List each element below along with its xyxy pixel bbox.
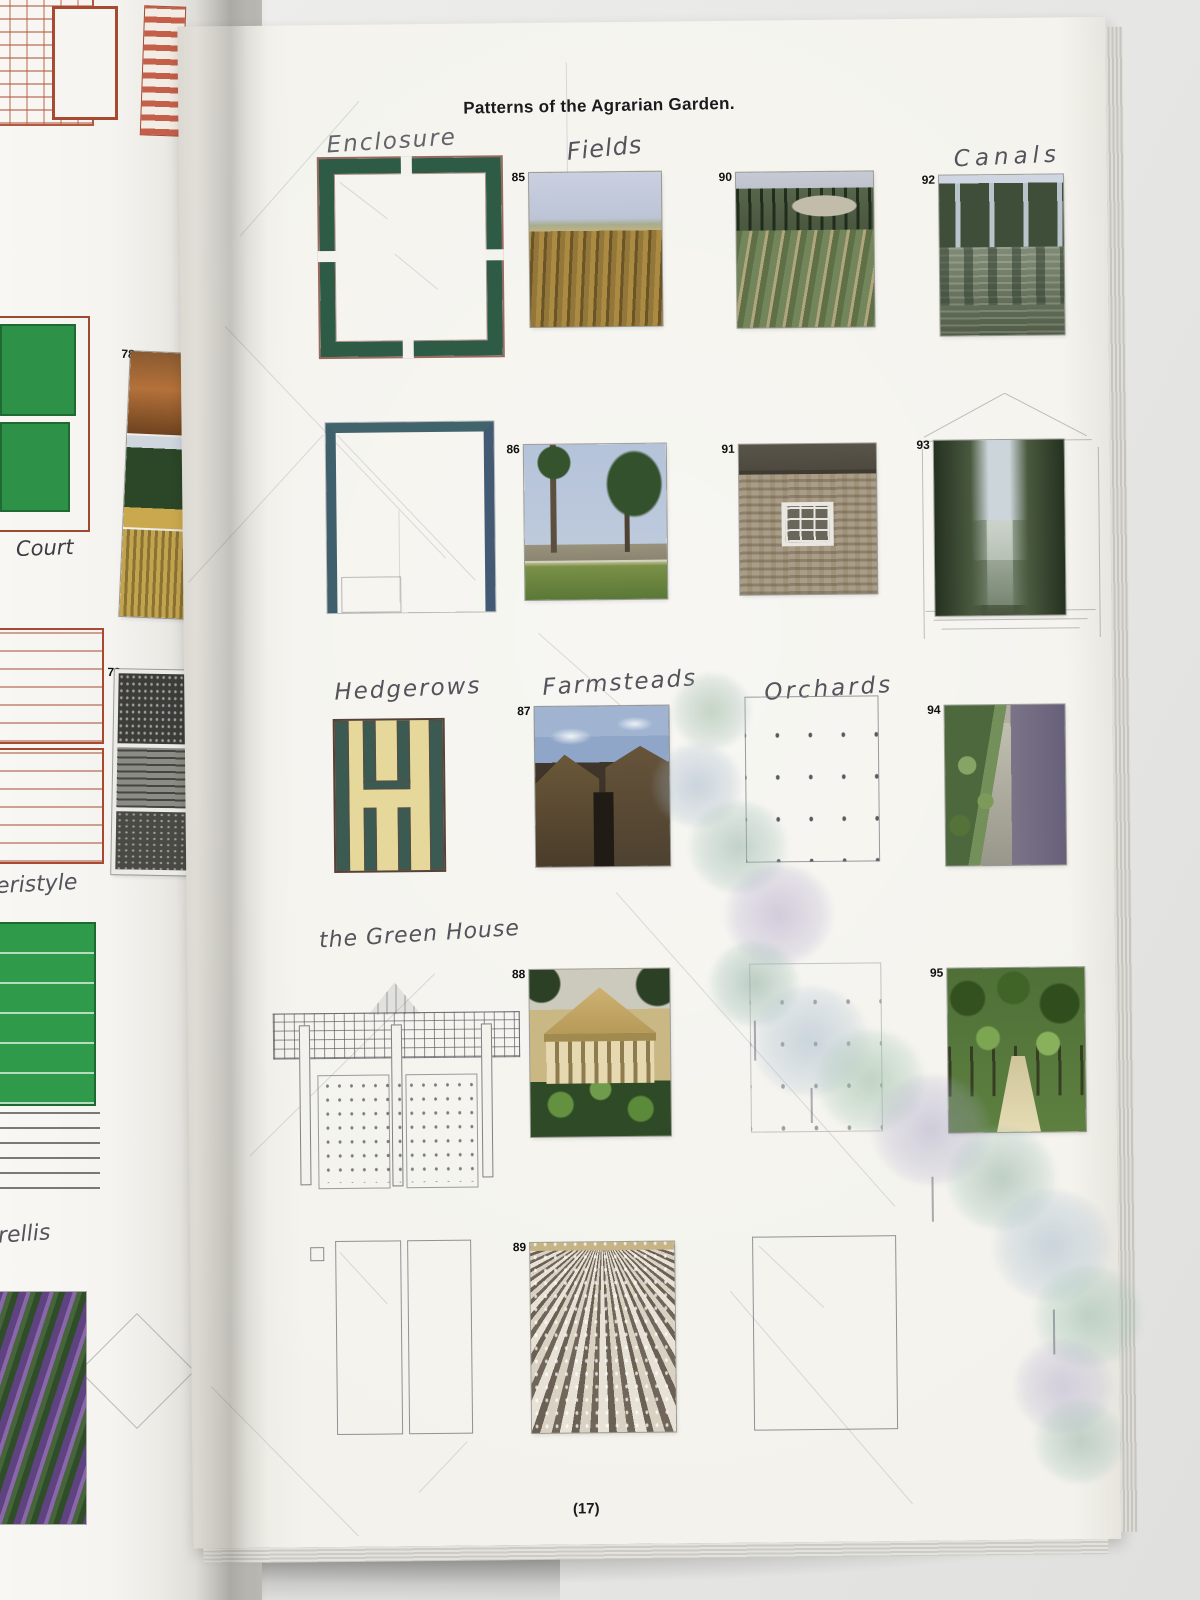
photo-crop-field [529, 172, 663, 327]
pencil-diamond-sketch [79, 1313, 195, 1429]
photo-villa-portico [529, 969, 671, 1137]
figure-86: 86 [524, 444, 668, 600]
section-label-hedgerows: Hedgerows [334, 673, 482, 706]
watercolor-blob [671, 673, 752, 750]
figure-89: 89 [530, 1241, 676, 1432]
section-label-enclosure: Enclosure [326, 124, 458, 158]
figure-number: 94 [918, 703, 940, 717]
figure-number: 86 [498, 442, 520, 456]
garden-plan-sketch [0, 748, 104, 864]
pencil-line [1098, 447, 1101, 637]
photo-farm-landscape [736, 171, 875, 327]
figure-91: 91 [739, 443, 878, 594]
book-spine-shadow [196, 0, 268, 1600]
figure-number: 89 [504, 1240, 526, 1254]
page-number: (17) [573, 1500, 600, 1517]
pediment-sketch [919, 385, 1092, 445]
pencil-square-mark [310, 1247, 324, 1261]
garden-plan-sketch [52, 6, 118, 120]
photo-canal-reflections [939, 174, 1065, 335]
figure-number: 88 [503, 967, 525, 981]
section-label-greenhouse: the Green House [318, 916, 520, 954]
garden-plan-sketch [0, 628, 104, 744]
garden-plan-sketch [0, 316, 90, 532]
label-trellis: rellis [0, 1220, 51, 1249]
watercolor-trunk [811, 1088, 813, 1123]
section-label-fields: Fields [565, 131, 643, 166]
section-label-canals: Canals [953, 142, 1061, 173]
book-photo: 78 Court 79 eristyle rellis [0, 0, 1200, 1600]
figure-93: 93 [934, 439, 1066, 615]
plot-rectangle-sketch [335, 1240, 403, 1435]
figure-number: 92 [913, 173, 935, 187]
steps-sketch [0, 1112, 100, 1192]
photo-ploughed-field [530, 1241, 676, 1432]
photo-farmstead [535, 706, 671, 867]
figure-number: 95 [921, 966, 943, 980]
photo-lavender-field [0, 1292, 86, 1524]
enclosure-plan-sketch [319, 157, 503, 357]
garden-plan-sketch [0, 922, 96, 1106]
figure-number: 90 [710, 170, 732, 184]
figure-94: 94 [945, 704, 1067, 865]
figure-90: 90 [736, 171, 875, 327]
page-title: Patterns of the Agrarian Garden. [463, 94, 735, 119]
figure-number: 85 [503, 170, 525, 184]
photo-stone-house [739, 443, 878, 594]
figure-number: 91 [713, 442, 735, 456]
watercolor-blob [1034, 1399, 1125, 1484]
watercolor-trunk [754, 1021, 756, 1061]
greenhouse-sketch [272, 981, 519, 1196]
figure-number: 93 [908, 438, 930, 452]
pencil-line [922, 449, 925, 639]
right-page: Patterns of the Agrarian Garden. Enclosu… [177, 17, 1121, 1549]
figure-88: 88 [529, 969, 671, 1137]
label-peristyle: eristyle [0, 870, 78, 899]
enclosure-plan-sketch [326, 421, 496, 613]
figure-number: 87 [508, 704, 530, 718]
label-court: Court [16, 535, 75, 561]
hedgerow-pattern-sketch [335, 720, 445, 871]
figure-92: 92 [939, 174, 1065, 335]
plot-rectangle-sketch [407, 1240, 473, 1435]
figure-85: 85 [529, 172, 663, 327]
photo-walled-channel [945, 704, 1067, 865]
photo-young-trees [524, 444, 668, 600]
photo-canal-vista [934, 439, 1066, 615]
figure-87: 87 [535, 706, 671, 867]
plot-rectangle-sketch [752, 1235, 898, 1430]
